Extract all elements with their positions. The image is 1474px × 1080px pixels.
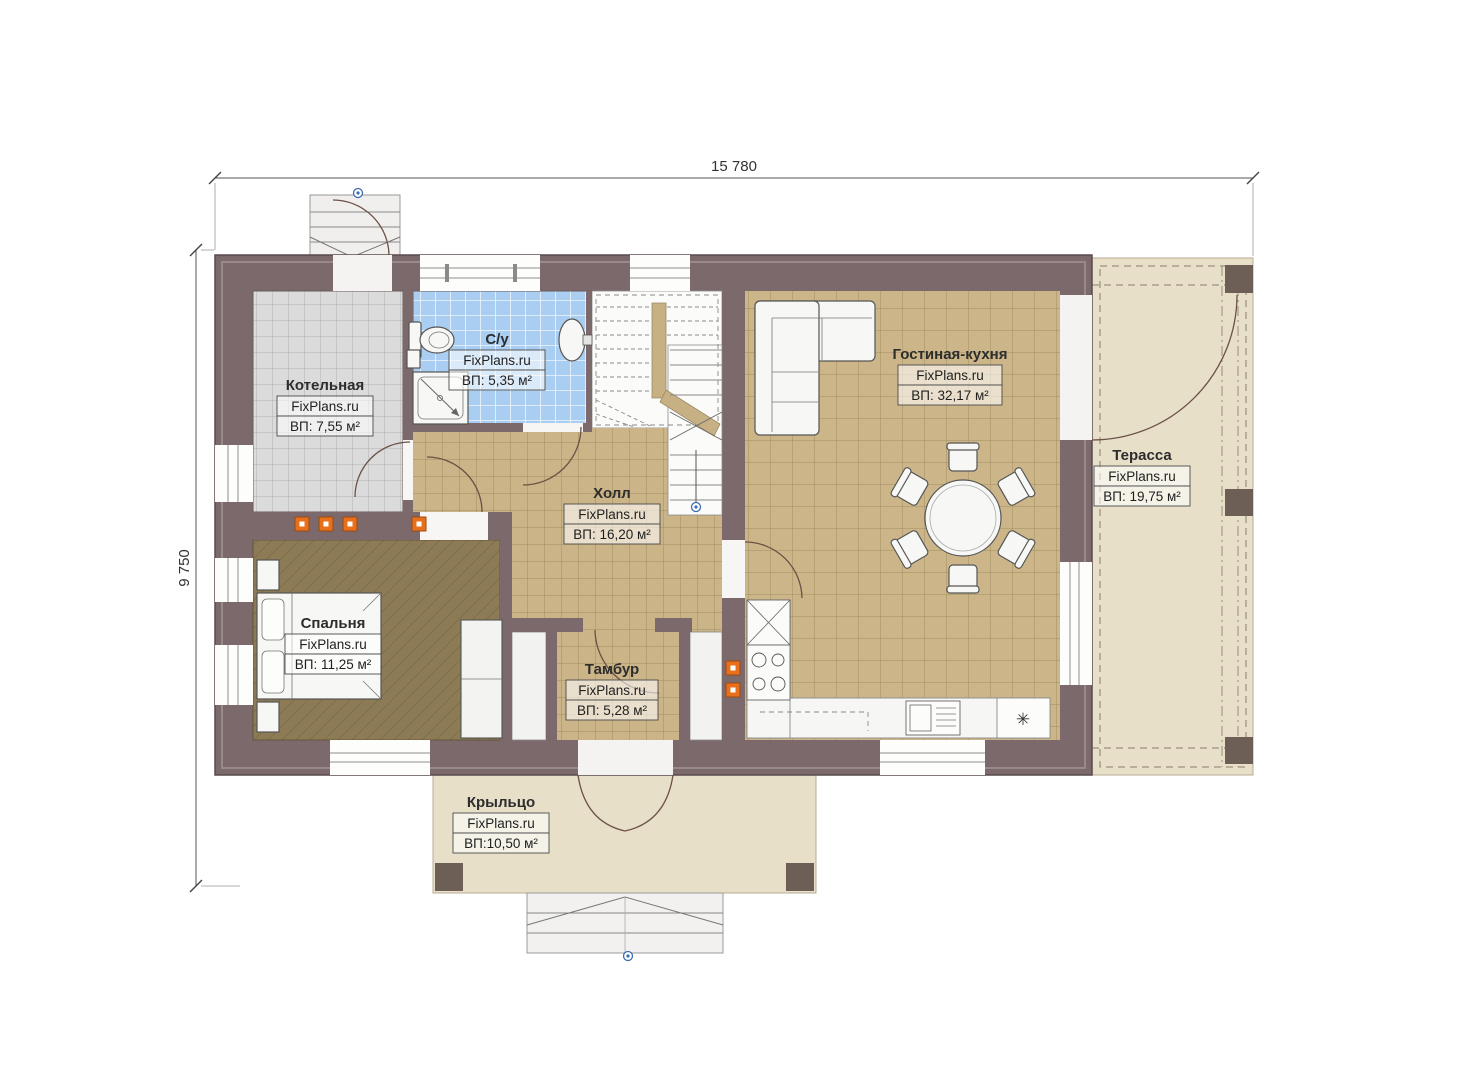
closet-right	[690, 632, 722, 740]
socket-mark	[295, 517, 309, 531]
socket-mark	[726, 683, 740, 697]
room-area: ВП: 7,55 м²	[290, 419, 361, 434]
room-name: Гостиная-кухня	[893, 346, 1008, 363]
room-label-porch: Крыльцо FixPlans.ru ВП:10,50 м²	[453, 794, 549, 853]
room-area: ВП:10,50 м²	[464, 836, 538, 851]
room-area: ВП: 16,20 м²	[573, 527, 651, 542]
level-marker	[692, 503, 701, 512]
porch-post	[435, 863, 463, 891]
terrace-post	[1225, 737, 1253, 764]
room-watermark: FixPlans.ru	[463, 353, 531, 368]
terrace-post	[1225, 489, 1253, 516]
room-watermark: FixPlans.ru	[291, 399, 359, 414]
terrace-post	[1225, 265, 1253, 293]
room-area: ВП: 19,75 м²	[1103, 489, 1181, 504]
window-living-bottom	[880, 740, 985, 775]
room-terrace	[1092, 258, 1253, 775]
room-name: Терасса	[1112, 447, 1172, 464]
upper-cabinet	[747, 600, 790, 645]
room-area: ВП: 5,28 м²	[577, 703, 648, 718]
window-bedroom-bottom	[330, 740, 430, 775]
room-name: Крыльцо	[467, 794, 535, 811]
fridge-symbol: ✳	[1016, 710, 1030, 729]
pillow	[262, 599, 284, 640]
boiler-exterior-door	[333, 255, 392, 291]
terrace-floor	[1092, 258, 1253, 775]
level-marker	[354, 189, 363, 198]
window-bedroom-left-2	[215, 645, 253, 705]
room-area: ВП: 32,17 м²	[911, 388, 989, 403]
dimension-height-label: 9 750	[176, 549, 193, 587]
room-watermark: FixPlans.ru	[1108, 469, 1176, 484]
socket-mark	[343, 517, 357, 531]
corner-basin	[407, 350, 420, 368]
window-living-right	[1060, 562, 1092, 685]
stove	[747, 645, 790, 700]
porch-post	[786, 863, 814, 891]
boiler-exterior-steps	[310, 195, 400, 257]
room-watermark: FixPlans.ru	[916, 368, 984, 383]
window-bedroom-left-1	[215, 558, 253, 602]
room-watermark: FixPlans.ru	[578, 507, 646, 522]
floor-plan-page: 15 780 9 750	[0, 0, 1474, 1080]
level-marker	[624, 952, 633, 961]
room-name: Тамбур	[585, 661, 639, 678]
socket-mark	[412, 517, 426, 531]
room-name: Холл	[593, 485, 631, 502]
room-watermark: FixPlans.ru	[578, 683, 646, 698]
room-name: Котельная	[286, 377, 365, 394]
room-area: ВП: 5,35 м²	[462, 373, 533, 388]
window-stairs	[630, 255, 690, 291]
room-watermark: FixPlans.ru	[299, 637, 367, 652]
window-bathroom	[420, 255, 540, 291]
dimension-width-label: 15 780	[711, 158, 757, 175]
closet-left	[512, 632, 546, 740]
wardrobe	[461, 620, 502, 738]
entrance-door-opening	[578, 740, 673, 775]
window-boiler	[215, 445, 253, 502]
room-label-living: Гостиная-кухня FixPlans.ru ВП: 32,17 м²	[893, 346, 1008, 405]
socket-mark	[319, 517, 333, 531]
kitchen-sink	[906, 701, 960, 735]
room-name: С/у	[485, 331, 509, 348]
stair-newel-wall	[652, 303, 666, 398]
floor-plan-canvas: 15 780 9 750	[0, 0, 1474, 1080]
room-area: ВП: 11,25 м²	[295, 657, 372, 672]
pillow	[262, 651, 284, 693]
room-label-boiler: Котельная FixPlans.ru ВП: 7,55 м²	[277, 377, 373, 436]
terrace-door-opening	[1060, 295, 1092, 440]
room-name: Спальня	[301, 615, 366, 632]
nightstand	[257, 560, 279, 590]
porch-steps	[527, 893, 723, 953]
nightstand	[257, 702, 279, 732]
fridge: ✳	[997, 698, 1050, 738]
room-watermark: FixPlans.ru	[467, 816, 535, 831]
socket-mark	[726, 661, 740, 675]
